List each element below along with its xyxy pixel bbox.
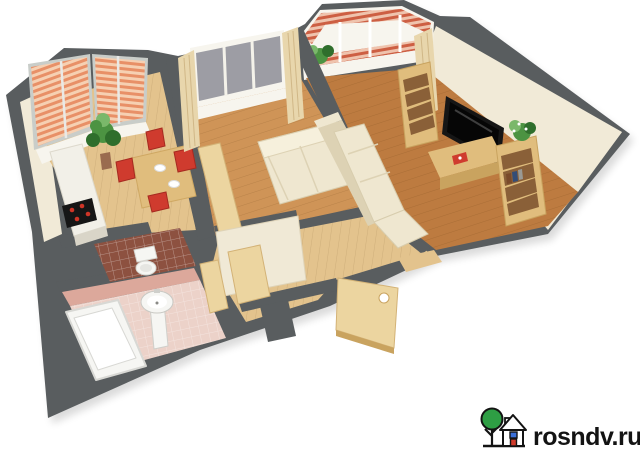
house-icon xyxy=(500,415,526,446)
rosndv-logo xyxy=(482,409,527,447)
chair-top xyxy=(146,128,165,150)
house-door xyxy=(511,439,517,446)
roof xyxy=(500,415,526,430)
house-window xyxy=(510,432,517,438)
chair-bottom xyxy=(148,192,169,212)
watermark-text: rosndv.ru xyxy=(533,423,640,451)
floorplan-canvas: rosndv.ru xyxy=(0,0,640,458)
chair-left xyxy=(116,158,135,182)
floorplan-image: rosndv.ru xyxy=(0,0,640,458)
door-handle-hole xyxy=(379,293,389,303)
tree-icon xyxy=(482,409,503,447)
watermark: rosndv.ru xyxy=(482,409,640,452)
